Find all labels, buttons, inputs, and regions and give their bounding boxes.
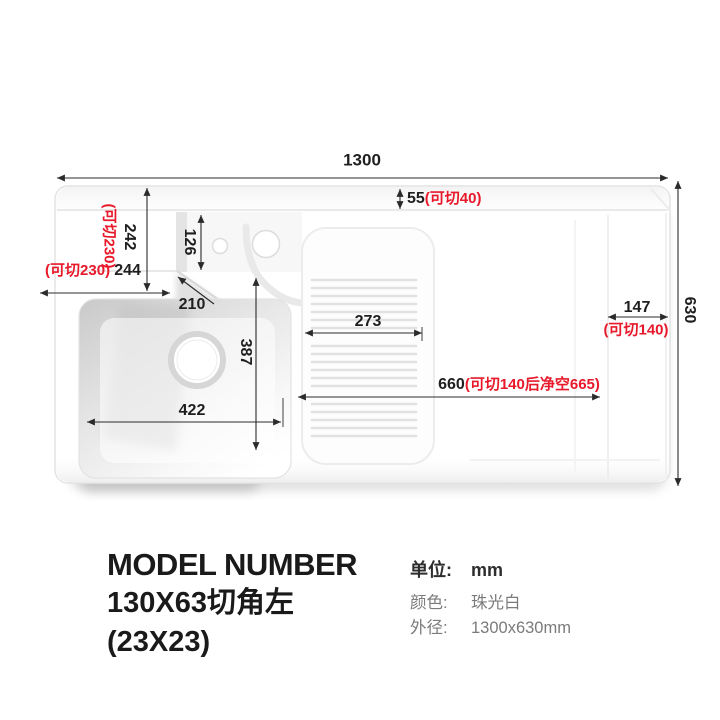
model-corner-spec: (23X23) <box>107 623 357 662</box>
dim-clear-span: 660(可切140后净空665) <box>438 377 600 393</box>
dim-total-height: 630 <box>681 297 697 324</box>
spec-outer-size-value: 1300x630mm <box>471 619 571 638</box>
dim-corner-diagonal: 210 <box>179 297 206 313</box>
spec-outer-size-label: 外径: <box>410 614 458 638</box>
spec-color-value: 珠光白 <box>471 589 521 613</box>
dim-back-left-width: (可切230) 244 <box>45 263 141 279</box>
dim-back-left-height-value: 242 <box>121 224 137 251</box>
spec-row-unit: 单位: mm <box>410 556 503 582</box>
dim-clear-span-value: 660 <box>438 376 465 393</box>
model-info-block: MODEL NUMBER 130X63切角左 (23X23) <box>107 546 357 662</box>
dim-bowl-width: 422 <box>179 403 206 419</box>
dim-back-left-width-cut: (可切230) <box>45 262 110 279</box>
dim-back-left-height-cut: (可切230) <box>102 203 117 268</box>
faucet-hole-small <box>213 239 228 254</box>
spec-row-color: 颜色: 珠光白 <box>410 589 521 613</box>
model-heading: MODEL NUMBER <box>107 546 357 584</box>
dim-bowl-height: 387 <box>237 339 253 366</box>
faucet-hole-large <box>253 231 280 258</box>
dim-back-left-width-value: 244 <box>114 262 141 279</box>
dim-top-rim: 55(可切40) <box>407 191 481 207</box>
spec-unit-label: 单位: <box>410 556 458 582</box>
spec-unit-value: mm <box>471 560 503 581</box>
dim-clear-span-cut: (可切140后净空665) <box>465 376 600 393</box>
dim-top-rim-cut: (可切40) <box>425 190 482 207</box>
spec-color-label: 颜色: <box>410 589 458 613</box>
model-name: 130X63切角左 <box>107 584 357 623</box>
spec-row-outer-size: 外径: 1300x630mm <box>410 614 571 638</box>
product-dimension-page: 1300 630 55(可切40) (可切230) 242 (可切230) 24… <box>0 0 720 720</box>
dim-washboard-width: 273 <box>355 314 382 330</box>
dim-right-ledge-cut: (可切140) <box>603 323 668 338</box>
dim-right-ledge-value: 147 <box>624 300 651 316</box>
dim-shelf-depth: 126 <box>181 229 197 256</box>
dim-top-rim-value: 55 <box>407 190 425 207</box>
dim-total-width: 1300 <box>343 152 381 169</box>
